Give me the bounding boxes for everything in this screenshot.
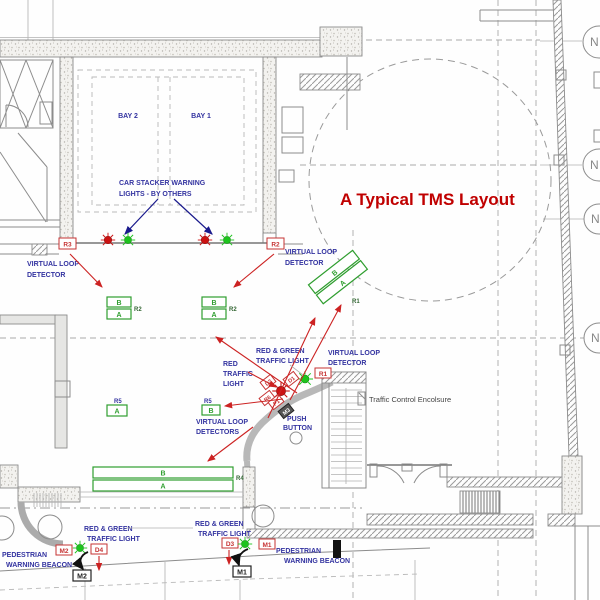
svg-text:R5: R5	[114, 399, 122, 405]
svg-text:B: B	[160, 471, 165, 478]
car-stacker-note-arrows	[125, 199, 212, 234]
vld-left-note-line2: DETECTOR	[27, 272, 65, 279]
beacon-tag-m1: M1	[259, 539, 275, 549]
leader-arrow	[70, 254, 102, 287]
ped-beacon-left-line1: PEDESTRIAN	[2, 552, 47, 559]
svg-text:A: A	[211, 312, 216, 319]
wall-fill-block	[333, 540, 341, 558]
leader-arrow	[234, 254, 274, 287]
floor-plan-canvas: BAY 2 BAY 1 N N N N A Typical TMS Layout…	[0, 0, 600, 600]
rg-bottom-right-line1: RED & GREEN	[195, 521, 244, 528]
red-traffic-light-note-line3: LIGHT	[223, 381, 245, 388]
detector-tag-r3: R3	[59, 238, 76, 249]
enclosure-label: Traffic Control Encolsure	[369, 395, 451, 404]
svg-text:A: A	[114, 409, 119, 416]
light-tag-d4: D4	[91, 544, 107, 554]
ped-beacon-right-line2: WARNING BEACON	[284, 558, 350, 565]
virtual-loop-pair-long: B A R4	[93, 467, 244, 491]
vld-left-note-line1: VIRTUAL LOOP	[27, 261, 79, 268]
building-walls	[0, 0, 600, 600]
light-tag-d3: D3	[222, 538, 238, 548]
svg-text:R5: R5	[204, 399, 212, 405]
svg-text:B: B	[211, 300, 216, 307]
red-green-note-line2: TRAFFIC LIGHT	[256, 358, 310, 365]
svg-text:M2: M2	[59, 548, 68, 555]
red-green-note-line1: RED & GREEN	[256, 348, 305, 355]
svg-text:B: B	[116, 300, 121, 307]
ped-beacon-left-line2: WARNING BEACON	[6, 562, 72, 569]
svg-text:R2: R2	[229, 307, 237, 313]
svg-text:A: A	[116, 312, 121, 319]
svg-text:M2: M2	[77, 574, 87, 581]
svg-text:M1: M1	[237, 570, 247, 577]
rg-bottom-left-line1: RED & GREEN	[84, 526, 133, 533]
car-stacker-note-line1: CAR STACKER WARNING	[119, 180, 206, 187]
ped-beacon-right-line1: PEDESTRIAN	[276, 548, 321, 555]
detector-tag-r2: R2	[267, 238, 284, 249]
push-button-note-line2: BUTTON	[283, 425, 312, 432]
grid-bubble-label: N	[590, 35, 599, 49]
green-traffic-light-icon	[73, 541, 87, 553]
rg-bottom-left-line2: TRAFFIC LIGHT	[87, 536, 141, 543]
svg-text:A: A	[160, 484, 165, 491]
beacon-ref-m2: M2	[73, 570, 91, 581]
grid-bubbles: N N N N	[583, 26, 600, 353]
svg-text:R1: R1	[319, 371, 328, 378]
vld-bottom-note-line1: VIRTUAL LOOP	[196, 419, 248, 426]
svg-text:R1: R1	[352, 299, 360, 305]
svg-text:B: B	[208, 408, 213, 415]
virtual-loop-single-right: R5 B	[202, 399, 220, 415]
virtual-loop-pair-left: B A R2	[107, 297, 142, 319]
svg-text:D3: D3	[226, 541, 235, 548]
svg-text:R3: R3	[63, 242, 72, 249]
vld-mid-note-line1: VIRTUAL LOOP	[328, 350, 380, 357]
beacon-ref-m1: M1	[233, 566, 251, 577]
svg-text:R4: R4	[236, 476, 244, 482]
vld-bottom-note-line2: DETECTORS	[196, 429, 239, 436]
green-traffic-light-icon	[238, 537, 252, 549]
vld-right-note-line1: VIRTUAL LOOP	[285, 249, 337, 256]
vld-mid-note-line2: DETECTOR	[328, 360, 366, 367]
drawing-title: A Typical TMS Layout	[340, 190, 515, 209]
beacon-tag-m2: M2	[56, 545, 72, 555]
car-stacker-note-line2: LIGHTS - BY OTHERS	[119, 191, 192, 198]
grid-bubble-label: N	[591, 331, 600, 345]
red-traffic-light-note-line1: RED	[223, 361, 238, 368]
vld-right-note-line2: DETECTOR	[285, 260, 323, 267]
push-button-icon	[290, 432, 302, 444]
svg-text:R2: R2	[134, 307, 142, 313]
bay-1-label: BAY 1	[191, 113, 211, 120]
traffic-control-enclosure: Traffic Control Encolsure	[358, 392, 451, 405]
svg-text:D4: D4	[95, 547, 104, 554]
virtual-loop-single-left: R5 A	[107, 399, 127, 416]
svg-text:M1: M1	[262, 542, 271, 549]
detector-tag-r1: R1	[315, 368, 331, 378]
grid-bubble-label: N	[591, 212, 600, 226]
push-button-note-line1: PUSH	[287, 416, 306, 423]
svg-text:R2: R2	[271, 242, 280, 249]
virtual-loop-pair-right: B A R2	[202, 297, 237, 319]
grid-bubble-label: N	[590, 158, 599, 172]
rg-bottom-right-line2: TRAFFIC LIGHT	[198, 531, 252, 538]
tms-layout-drawing: BAY 2 BAY 1 N N N N A Typical TMS Layout…	[0, 0, 600, 600]
bay-2-label: BAY 2	[118, 113, 138, 120]
